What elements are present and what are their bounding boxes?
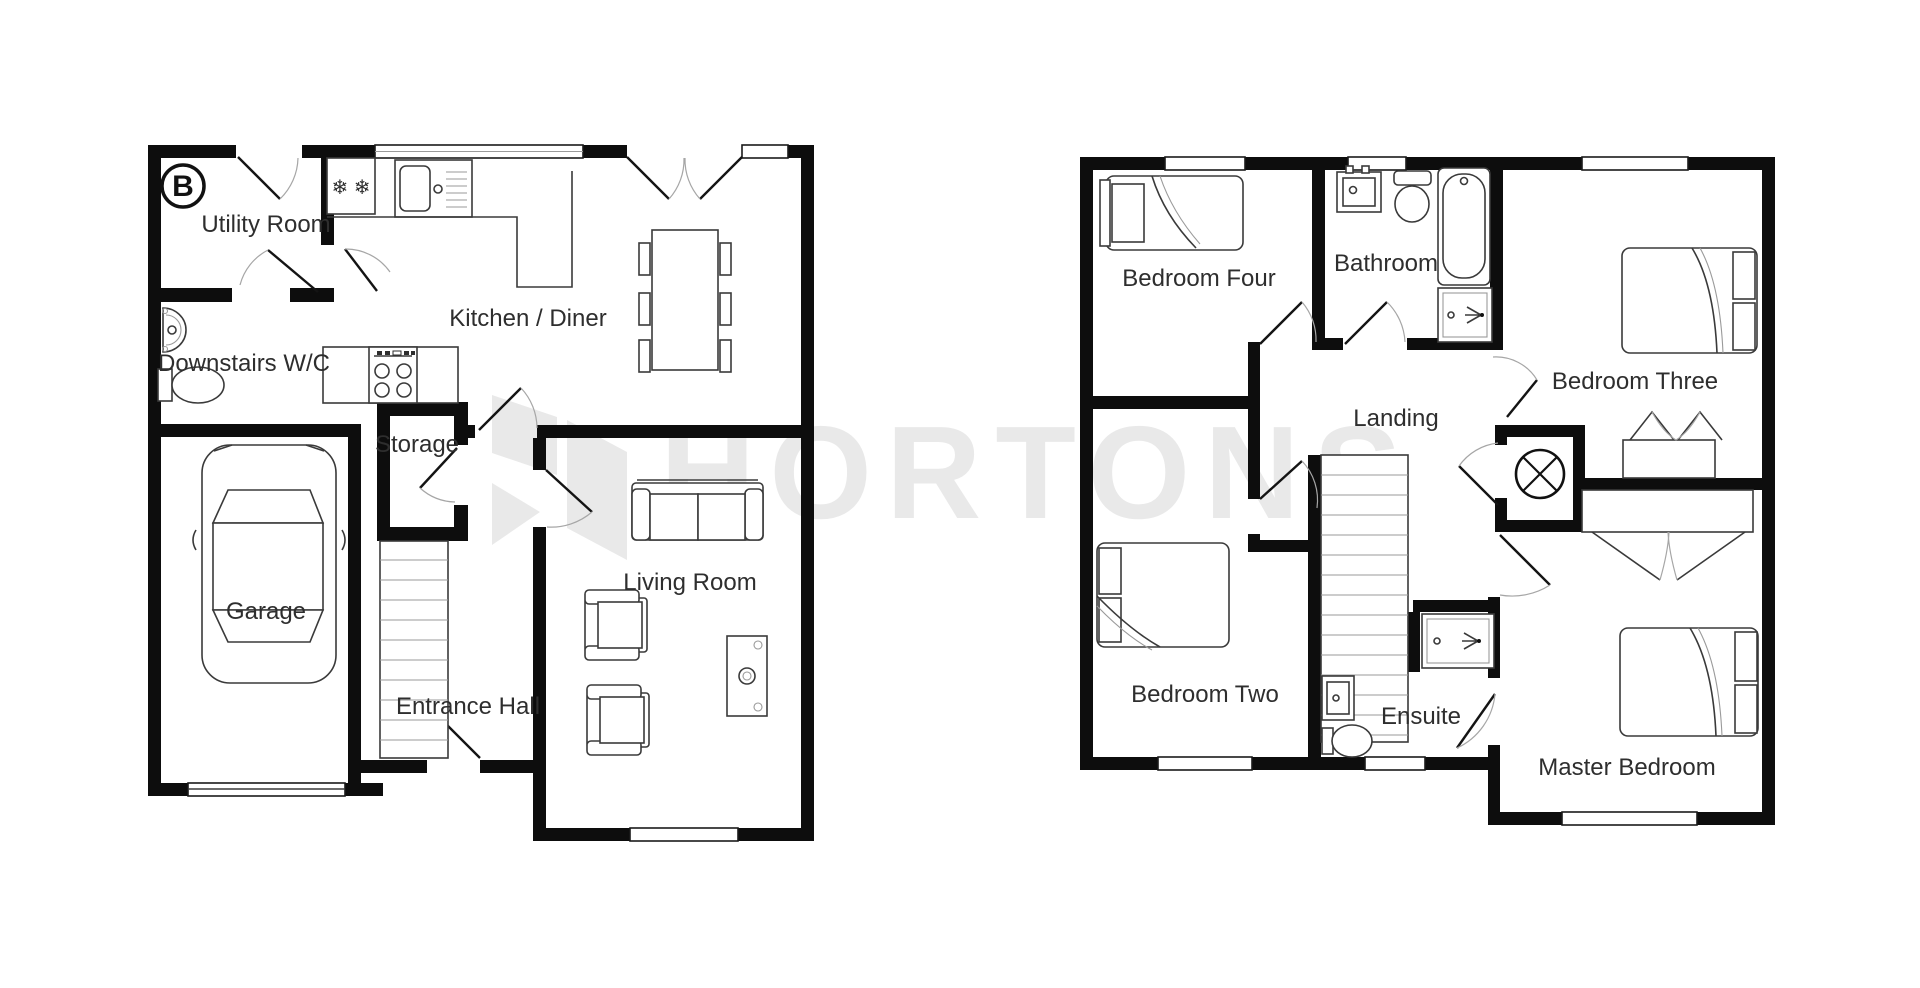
ground-floor-stairs	[380, 541, 448, 758]
airing-cupboard-icon	[1516, 450, 1564, 498]
svg-text:❄ ❄: ❄ ❄	[331, 177, 370, 199]
armchair-2	[587, 685, 649, 755]
ensuite-basin-icon	[1322, 676, 1354, 720]
watermark-brand-text: HORTONS	[660, 399, 1416, 546]
double-bed-bedroom-two	[1097, 543, 1229, 650]
ensuite-toilet-icon	[1322, 725, 1372, 757]
kitchen-sink-icon	[395, 160, 472, 217]
label-utility-room: Utility Room	[201, 211, 330, 238]
label-kitchen-diner: Kitchen / Diner	[449, 305, 606, 332]
double-bed-bedroom-three	[1622, 248, 1757, 353]
armchair-1	[585, 590, 647, 660]
label-bathroom: Bathroom	[1334, 250, 1438, 277]
compass-badge: B	[162, 165, 204, 207]
label-garage: Garage	[226, 598, 306, 625]
label-landing: Landing	[1353, 405, 1438, 432]
ensuite-shower-icon	[1422, 614, 1494, 668]
label-bedroom-four: Bedroom Four	[1122, 265, 1275, 292]
freezer-icon: ❄ ❄	[327, 158, 375, 214]
wc-basin-icon	[163, 308, 187, 352]
tv-unit	[727, 636, 767, 716]
watermark-logo-bar-icon	[567, 420, 627, 560]
dining-table	[639, 230, 731, 372]
floorplan-page: HORTONS ❄ ❄	[0, 0, 1920, 988]
floorplan-drawing: HORTONS ❄ ❄	[0, 0, 1920, 988]
watermark-logo-triangle-icon	[492, 483, 540, 545]
car-icon	[193, 445, 345, 683]
label-bedroom-three: Bedroom Three	[1552, 368, 1718, 395]
ground-floor-plan: ❄ ❄	[148, 145, 814, 841]
bathtub-icon	[1438, 168, 1490, 285]
wardrobe-master-bedroom	[1582, 490, 1753, 580]
label-bedroom-two: Bedroom Two	[1131, 681, 1279, 708]
hob-icon	[323, 347, 458, 403]
label-storage: Storage	[375, 431, 459, 458]
single-bed-bedroom-four	[1100, 176, 1243, 250]
hortons-watermark: HORTONS	[492, 395, 1416, 560]
sofa	[632, 480, 763, 540]
bathroom-toilet-icon	[1394, 171, 1431, 222]
wardrobe-bedroom-three	[1623, 412, 1722, 478]
bathroom-shower-icon	[1438, 288, 1492, 342]
label-living-room: Living Room	[623, 569, 756, 596]
label-ensuite: Ensuite	[1381, 703, 1461, 730]
label-entrance-hall: Entrance Hall	[396, 693, 540, 720]
label-master-bedroom: Master Bedroom	[1538, 754, 1715, 781]
compass-letter: B	[172, 170, 194, 203]
double-bed-master	[1620, 628, 1758, 736]
label-downstairs-wc: Downstairs W/C	[158, 350, 330, 377]
bathroom-basin-icon	[1337, 166, 1381, 212]
